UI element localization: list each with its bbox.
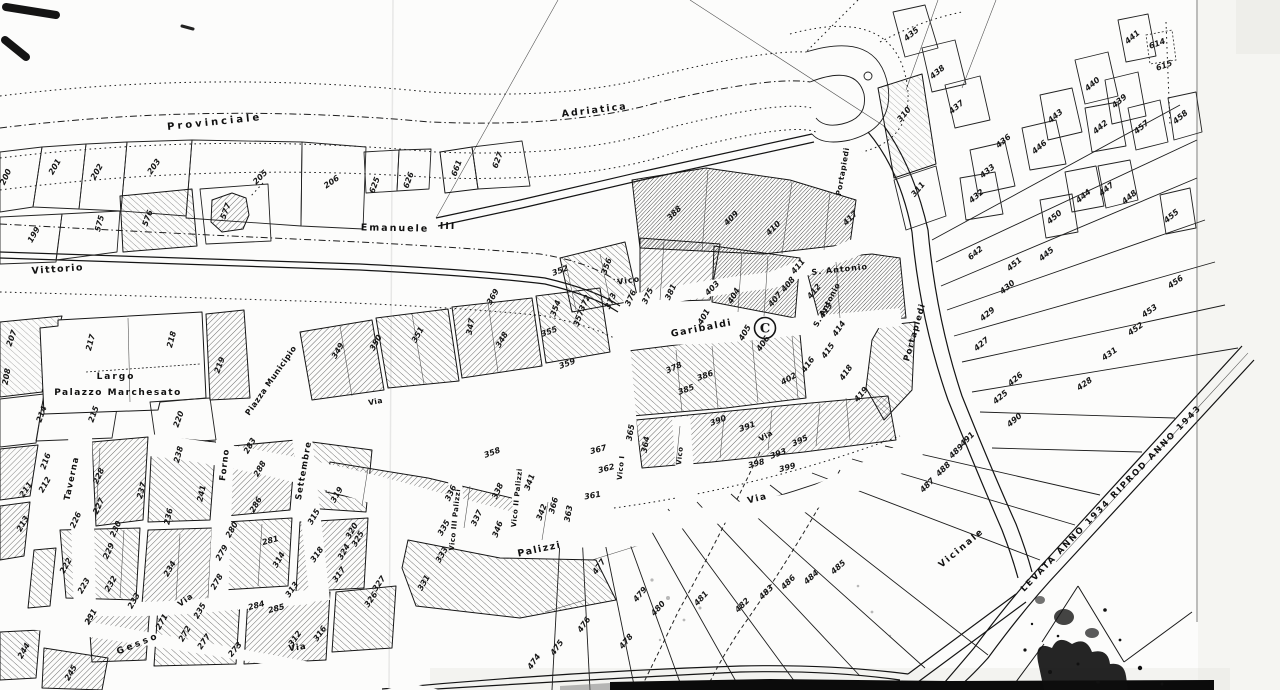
parcel-number: 216	[39, 451, 53, 470]
parcel-number: 661	[450, 159, 464, 178]
parcel-number: 453	[1139, 302, 1159, 320]
parcel-number: 206	[322, 173, 341, 190]
parcel-number: 366	[547, 496, 560, 515]
parcel-number: 484	[801, 568, 820, 587]
street-label: Vittorio	[31, 262, 84, 277]
parcel-number: 476	[575, 615, 593, 635]
parcel-number: 367	[589, 443, 608, 456]
parcel-number: 488	[933, 460, 952, 479]
parcel-number: 205	[251, 168, 269, 186]
parcel-number: 440	[1082, 75, 1102, 94]
parcel-number: 203	[145, 157, 162, 176]
parcel-number: 615	[1155, 58, 1174, 72]
parcel-number: 456	[1165, 273, 1185, 291]
parcel-number: 626	[402, 170, 416, 189]
parcel-number: 475	[548, 638, 566, 658]
parcel-number: 212	[37, 475, 53, 494]
parcel-number: 430	[997, 278, 1017, 297]
parcel-number: 425	[990, 388, 1010, 407]
parcel-number: 627	[491, 150, 505, 169]
street-label: III	[440, 221, 457, 232]
parcel-number: 436	[993, 132, 1013, 151]
parcel-number: 481	[692, 589, 711, 608]
parcel-number: 433	[977, 162, 997, 181]
parcel-number: 445	[1036, 245, 1056, 264]
parcel-number: 361	[584, 490, 602, 502]
parcel-number: 202	[89, 162, 105, 181]
street-label: Portapiedi	[834, 147, 851, 197]
parcel-number: 220	[172, 409, 186, 428]
street-label: Palazzo Marchesato	[54, 388, 182, 398]
street-label: Vicinale	[937, 527, 986, 571]
parcel-number: 446	[1029, 138, 1049, 157]
palazzo-marchesato	[40, 310, 250, 444]
parcel-number: 442	[1090, 118, 1110, 137]
street-label: Provinciale	[167, 112, 263, 133]
parcel-number: 458	[1170, 108, 1190, 127]
street-label: Adriatica	[561, 101, 628, 120]
field-strips-south	[545, 436, 1100, 690]
survey-annotation: LEVATA ANNO 1934 RIPROD ANNO 1943	[1019, 403, 1204, 594]
parcel-number: 441	[1122, 28, 1141, 46]
parcel-number: 200	[0, 167, 14, 186]
street-label: Largo	[97, 372, 136, 382]
street-label: Via	[367, 396, 383, 407]
parcel-number: 478	[617, 632, 636, 652]
parcel-number: 199	[26, 225, 42, 244]
svg-text:C: C	[760, 322, 770, 337]
parcel-number: 443	[1045, 107, 1065, 126]
street-label: Emanuele	[361, 222, 430, 234]
parcel-number: 427	[971, 335, 991, 354]
parcel-number: 432	[966, 187, 986, 206]
parcel-number: 429	[977, 305, 997, 324]
parcel-number: 358	[483, 445, 502, 459]
parcel-number: 486	[778, 573, 797, 592]
parcel-number: 311	[909, 180, 927, 199]
parcel-number: 480	[649, 599, 668, 618]
parcel-number: 625	[368, 175, 382, 194]
parcel-number: 479	[631, 585, 650, 605]
street-label: Vico I	[616, 455, 627, 480]
parcel-number: 487	[917, 476, 936, 495]
cadastral-map-scan: C ProvincialeAdriaticaVittorioEmanueleII…	[0, 0, 1280, 690]
street-label: Piazza Municipio	[243, 344, 298, 417]
parcel-number: 437	[946, 98, 966, 117]
parcel-number: 363	[563, 504, 575, 522]
map-svg: C ProvincialeAdriaticaVittorioEmanueleII…	[0, 0, 1280, 690]
street-label: Vico	[617, 274, 641, 286]
parcel-number: 362	[597, 462, 616, 475]
parcel-number: 415	[819, 341, 837, 361]
parcel-number: 418	[837, 363, 855, 383]
parcel-number: 431	[1099, 345, 1119, 363]
parcel-number: 428	[1074, 375, 1094, 393]
parcel-number: 485	[828, 558, 847, 577]
parcel-number: 614	[1148, 36, 1167, 50]
parcel-number: 457	[1131, 118, 1151, 137]
parcel-number: 482	[732, 596, 751, 615]
parcel-number: 490	[1004, 411, 1024, 430]
parcel-number: 201	[47, 157, 63, 176]
parcel-number: 398	[747, 457, 766, 470]
parcel-number: 438	[927, 63, 947, 82]
parcel-number: 450	[1044, 208, 1064, 227]
parcel-number: 435	[901, 25, 921, 44]
parcel-number: 399	[778, 461, 797, 474]
parcel-number: 483	[756, 583, 775, 602]
